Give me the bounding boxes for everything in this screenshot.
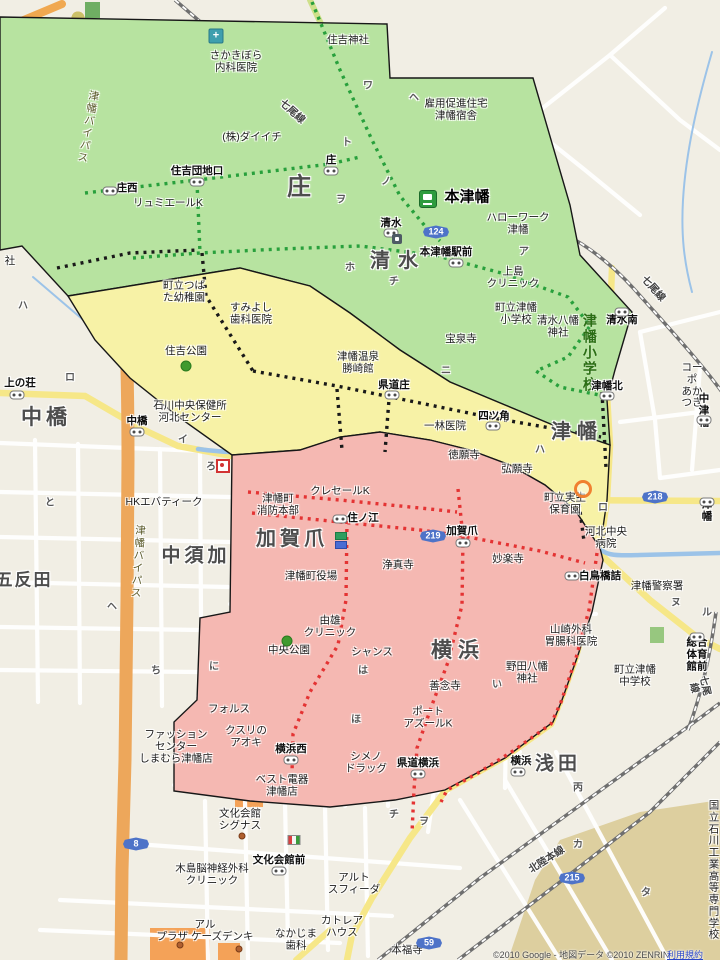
map-label: 丙 — [573, 782, 583, 793]
map-label: 庄 — [287, 175, 313, 202]
map-label: 津幡町 消防本部 — [257, 493, 299, 517]
bus-stop-icon — [190, 178, 205, 187]
map-label: 中橋 — [127, 416, 148, 428]
bus-stop-icon — [411, 770, 426, 779]
map-label: 五反田 — [0, 570, 53, 589]
bus-stop-icon — [486, 422, 501, 431]
bus-stop-icon — [697, 416, 712, 425]
route-badge-icon: 219 — [420, 530, 446, 543]
map-label: 清水 — [370, 250, 426, 272]
map-label: 中央公園 — [268, 645, 310, 657]
map-label: 住吉神社 — [327, 35, 369, 47]
map-label: ル — [702, 607, 712, 618]
bus-stop-icon — [284, 756, 299, 765]
map-label: ファッション センター しまむら津幡店 — [139, 729, 213, 764]
map-label: チ — [389, 809, 399, 820]
map-label: クスリの アオキ — [225, 725, 267, 749]
building-dot-icon — [236, 946, 243, 953]
route-badge-icon: 215 — [559, 872, 585, 885]
route-badge-icon: 59 — [416, 937, 442, 950]
map-label: 津幡温泉 勝崎館 — [337, 351, 379, 375]
map-label: 一林医院 — [424, 421, 466, 433]
map-label: ロ — [65, 372, 75, 383]
bus-stop-icon — [10, 391, 25, 400]
map-label: い — [492, 679, 502, 690]
bus-stop-icon — [449, 259, 464, 268]
bus-stop-icon — [333, 515, 348, 524]
map-label: ワ — [363, 80, 373, 91]
map-label: 清水南 — [606, 315, 638, 327]
map-label: 清水八幡 神社 — [537, 315, 579, 339]
map-label: 庄 — [326, 155, 337, 167]
map-label: 総合 体育館前 — [686, 637, 709, 672]
map-label: 徳願寺 — [448, 450, 480, 462]
park-tree-icon — [282, 636, 293, 647]
bus-stop-icon — [700, 498, 715, 507]
map-label: 庄西 — [117, 183, 138, 195]
map-label: 中須加 — [161, 545, 230, 566]
map-label: と — [45, 497, 55, 508]
map-label: アルト スフィーダ — [328, 872, 380, 896]
map-label: ノ — [381, 176, 391, 187]
map-label: 上島 クリニック — [487, 266, 540, 290]
map-label: 七尾線 — [639, 274, 667, 304]
bus-stop-icon — [690, 633, 705, 642]
map-label: 本津幡 — [444, 190, 489, 207]
hospital-icon: + — [209, 29, 224, 44]
map-label: 妙楽寺 — [492, 554, 524, 566]
map-label: 県道横浜 — [397, 758, 439, 770]
poi-chip-icon — [335, 541, 347, 549]
map-canvas[interactable]: さかきぼら 内科医院住吉神社雇用促進住宅 津幡宿舎(株)ダイイチリュミエールK住… — [0, 0, 720, 960]
map-label: シャンス — [351, 647, 393, 659]
map-label: 社 — [5, 256, 16, 268]
map-label: ヲ — [336, 194, 346, 205]
map-label: ヘ — [107, 601, 117, 612]
map-label: 石川中央保健所 河北センター — [153, 400, 227, 424]
bus-stop-icon — [456, 539, 471, 548]
map-label: チ — [389, 276, 399, 287]
map-label: ベスト電器 津幡店 — [256, 774, 309, 798]
map-label: 横浜西 — [275, 744, 307, 756]
map-label: 浄真寺 — [382, 560, 414, 572]
map-label: ヌ — [671, 597, 681, 608]
map-label: 七尾線 — [277, 98, 307, 126]
label-layer: さかきぼら 内科医院住吉神社雇用促進住宅 津幡宿舎(株)ダイイチリュミエールK住… — [0, 0, 720, 960]
map-label: 津幡 — [551, 421, 603, 443]
building-dot-icon — [177, 942, 184, 949]
map-label: 津幡警察署 — [631, 581, 684, 593]
map-label: 住ノ江 — [347, 513, 379, 525]
route-badge-icon: 8 — [123, 838, 149, 851]
map-label: 津幡バイパス — [129, 524, 146, 600]
bus-stop-icon — [103, 187, 118, 196]
map-label: 住吉公園 — [165, 346, 207, 358]
map-label: は — [358, 665, 368, 676]
map-label: シメノ ドラッグ — [345, 751, 387, 775]
map-label: 町立つば た幼稚園 — [163, 280, 205, 304]
bus-stop-icon — [565, 572, 580, 581]
map-label: イ — [178, 434, 188, 445]
map-label: 加賀爪 — [256, 528, 328, 550]
map-label: 中橋 — [21, 406, 71, 430]
map-label: カトレア ハウス — [321, 915, 363, 939]
map-label: 町立津幡 中学校 — [614, 664, 656, 688]
bus-stop-icon — [600, 392, 615, 401]
map-label: リュミエールK — [133, 198, 203, 210]
map-label: クレセールK — [310, 486, 370, 498]
map-label: 文化会館前 — [253, 855, 306, 867]
map-label: タ — [641, 887, 651, 898]
map-label: 宝泉寺 — [445, 334, 477, 346]
map-label: 山崎外科 胃腸科医院 — [545, 624, 598, 648]
map-label: 横浜 — [511, 756, 532, 768]
poi-chip-icon — [335, 532, 347, 540]
map-label: 雇用促進住宅 津幡宿舎 — [425, 98, 488, 122]
bus-stop-icon — [324, 167, 339, 176]
fuel-station-icon — [392, 234, 402, 244]
hall-poi-icon — [288, 835, 301, 845]
bus-stop-icon — [272, 867, 287, 876]
map-label: 七尾線 — [686, 674, 712, 699]
map-label: 河北中央 病院 — [585, 526, 627, 550]
map-label: ヘ — [409, 92, 419, 103]
route-badge-icon: 218 — [642, 491, 668, 504]
poi-marker-icon — [216, 459, 230, 473]
bus-stop-icon — [511, 768, 526, 777]
map-label: 木島脳神経外科 クリニック — [175, 863, 249, 887]
building-dot-icon — [239, 833, 246, 840]
map-label: 白鳥橋詰 — [579, 571, 621, 583]
map-label: さかきぼら 内科医院 — [210, 50, 263, 74]
map-label: 国立石川工業 高等専門学校 — [709, 801, 720, 942]
map-label: 善念寺 — [429, 681, 461, 693]
map-label: 北陸本線 — [527, 844, 567, 875]
map-label: アル プラザ ケーズデンキ — [157, 919, 254, 943]
map-label: 本津幡駅前 — [420, 247, 473, 259]
map-label: 津幡バイパス — [75, 89, 100, 165]
map-label: 横浜 — [431, 639, 485, 663]
map-label: ホ — [345, 262, 355, 273]
park-tree-icon — [181, 361, 192, 372]
map-label: 加賀爪 — [446, 526, 478, 538]
train-station-icon — [419, 190, 437, 208]
bus-stop-icon — [615, 308, 630, 317]
copyright-text: ©2010 Google - 地図データ ©2010 ZENRIN — [493, 948, 669, 960]
map-label: ハローワーク 津幡 — [487, 212, 550, 236]
map-label: 住吉団地口 — [171, 166, 224, 178]
map-label: ヲ — [419, 816, 429, 827]
map-label: すみよし 歯科医院 — [230, 302, 272, 326]
map-label: フォルス — [208, 704, 250, 716]
map-label: ハ — [18, 300, 28, 311]
kindergarten-marker-icon — [574, 480, 592, 498]
map-label: ほ — [351, 714, 361, 725]
map-label: ろ — [206, 461, 216, 472]
map-label: HKエバティーク — [126, 497, 203, 509]
map-label: 由雄 クリニック — [304, 615, 357, 639]
map-label: 文化会館 シグナス — [219, 808, 261, 832]
map-label: なかじま 歯科 — [275, 928, 317, 952]
map-label: カ — [573, 839, 583, 850]
map-label: に — [209, 661, 219, 672]
route-badge-icon: 124 — [423, 226, 449, 239]
map-label: ハ — [535, 444, 545, 455]
map-label: ア — [519, 246, 529, 257]
map-label: ト — [342, 137, 352, 148]
map-label: 浅田 — [535, 753, 581, 774]
map-label: 津幡町役場 — [285, 571, 338, 583]
map-label: 津幡小学校 — [581, 313, 597, 393]
map-label: 町立津幡 小学校 — [495, 302, 537, 326]
map-label: ニ — [441, 365, 451, 376]
map-label: 弘願寺 — [501, 464, 533, 476]
map-label: ロ — [598, 502, 608, 513]
map-label: ポート アズールK — [403, 706, 452, 730]
map-label: ち — [151, 665, 161, 676]
bus-stop-icon — [385, 391, 400, 400]
bus-stop-icon — [130, 428, 145, 437]
terms-link[interactable]: 利用規約 — [667, 948, 703, 960]
map-label: 野田八幡 神社 — [506, 661, 548, 685]
map-label: 上の荘 — [4, 378, 36, 390]
map-label: (株)ダイイチ — [222, 132, 282, 144]
map-label: コーポ あかつき — [678, 363, 706, 410]
